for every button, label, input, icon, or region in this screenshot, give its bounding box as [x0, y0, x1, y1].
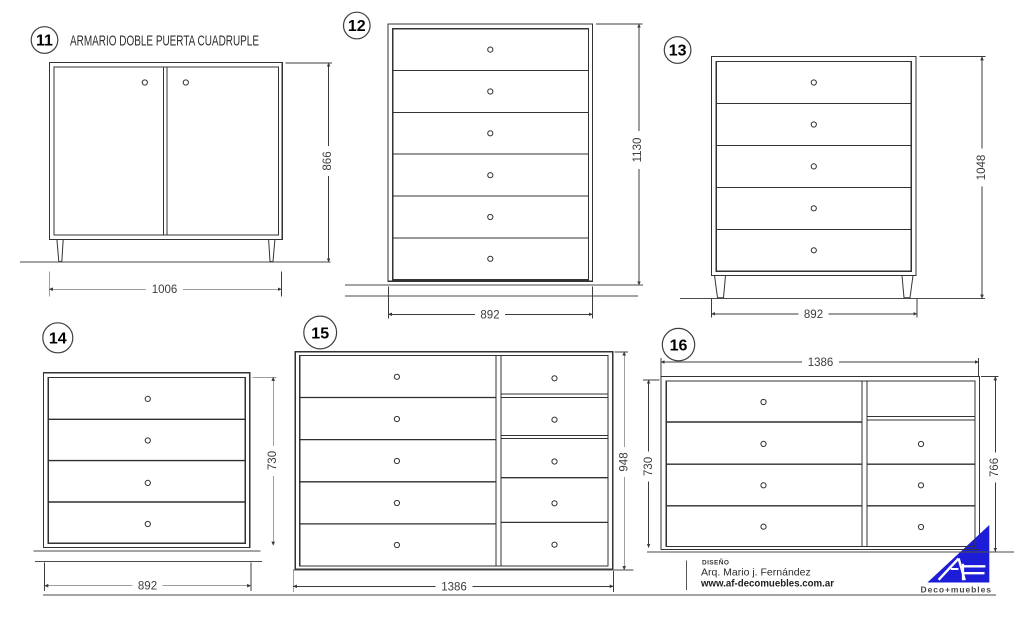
- svg-text:13: 13: [669, 43, 687, 60]
- svg-text:12: 12: [348, 18, 366, 35]
- svg-text:15: 15: [311, 325, 329, 342]
- svg-text:16: 16: [670, 337, 688, 354]
- svg-text:Deco+muebles: Deco+muebles: [921, 585, 992, 595]
- svg-text:14: 14: [49, 330, 67, 347]
- svg-text:11: 11: [36, 33, 53, 50]
- svg-text:730: 730: [643, 457, 655, 476]
- svg-text:730: 730: [267, 451, 279, 470]
- svg-text:1386: 1386: [808, 357, 834, 369]
- svg-text:948: 948: [619, 452, 631, 471]
- svg-text:1386: 1386: [441, 581, 467, 593]
- svg-text:1006: 1006: [152, 284, 178, 296]
- svg-text:www.af-decomuebles.com.ar: www.af-decomuebles.com.ar: [700, 578, 834, 590]
- svg-text:1048: 1048: [976, 155, 988, 181]
- svg-text:866: 866: [322, 151, 334, 170]
- svg-text:1130: 1130: [632, 138, 644, 163]
- svg-text:766: 766: [989, 458, 1001, 477]
- svg-text:892: 892: [138, 581, 157, 593]
- svg-text:ARMARIO DOBLE PUERTA CUADRUPLE: ARMARIO DOBLE PUERTA CUADRUPLE: [70, 33, 259, 50]
- svg-text:892: 892: [804, 309, 823, 321]
- svg-text:892: 892: [480, 309, 499, 321]
- svg-text:DISEÑO: DISEÑO: [702, 558, 729, 567]
